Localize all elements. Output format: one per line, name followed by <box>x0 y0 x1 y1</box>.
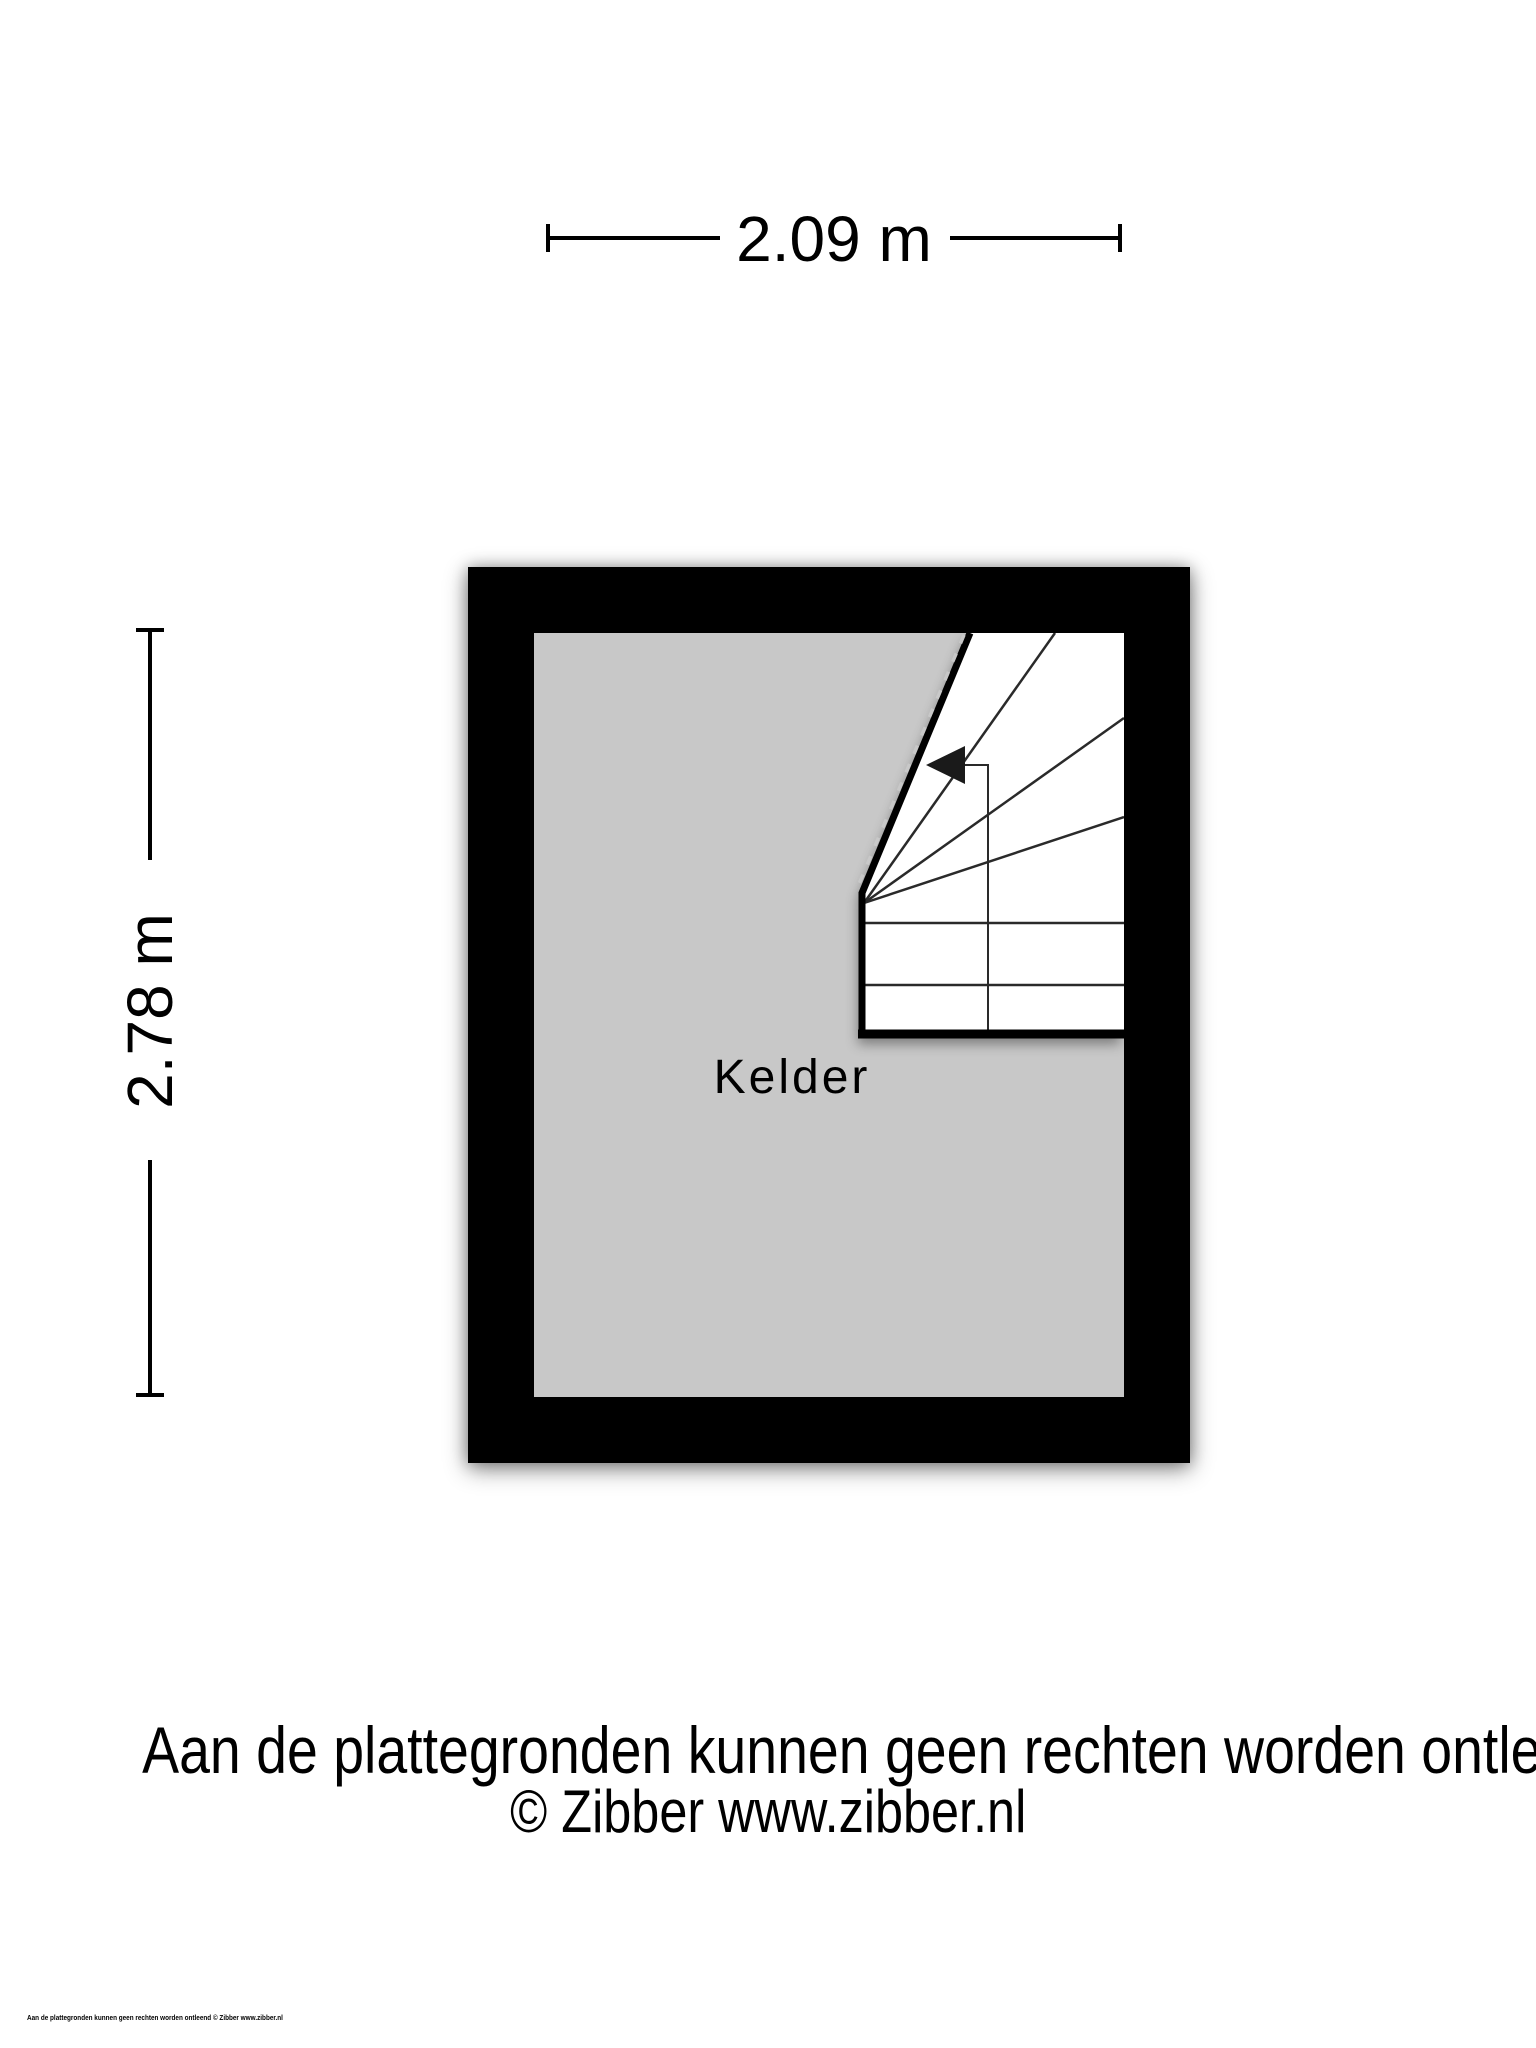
dimension-height-line-bottom <box>148 1160 152 1395</box>
floorplan-page: 2.09 m 2.78 m <box>0 0 1536 2048</box>
footer-credit: © Zibber www.zibber.nl <box>0 1781 1536 1843</box>
dimension-width-label: 2.09 m <box>704 206 964 272</box>
staircase <box>534 633 1124 1397</box>
room-label: Kelder <box>672 1053 912 1103</box>
footer-disclaimer: Aan de plattegronden kunnen geen rechten… <box>0 1716 1536 1784</box>
fine-print: Aan de plattegronden kunnen geen rechten… <box>27 2013 283 2022</box>
dimension-width-tick-right <box>1118 224 1122 252</box>
footer-disclaimer-text: Aan de plattegronden kunnen geen rechten… <box>142 1716 1536 1784</box>
dimension-width-line-left <box>548 236 720 240</box>
staircase-area <box>862 633 1124 1038</box>
dimension-height-line-top <box>148 630 152 860</box>
dimension-height-label: 2.78 m <box>117 881 183 1141</box>
dimension-height-tick-bottom <box>136 1393 164 1397</box>
footer-credit-text: © Zibber www.zibber.nl <box>510 1781 1026 1843</box>
plan-outer-walls: Kelder <box>468 567 1190 1463</box>
dimension-width-line-right <box>950 236 1120 240</box>
